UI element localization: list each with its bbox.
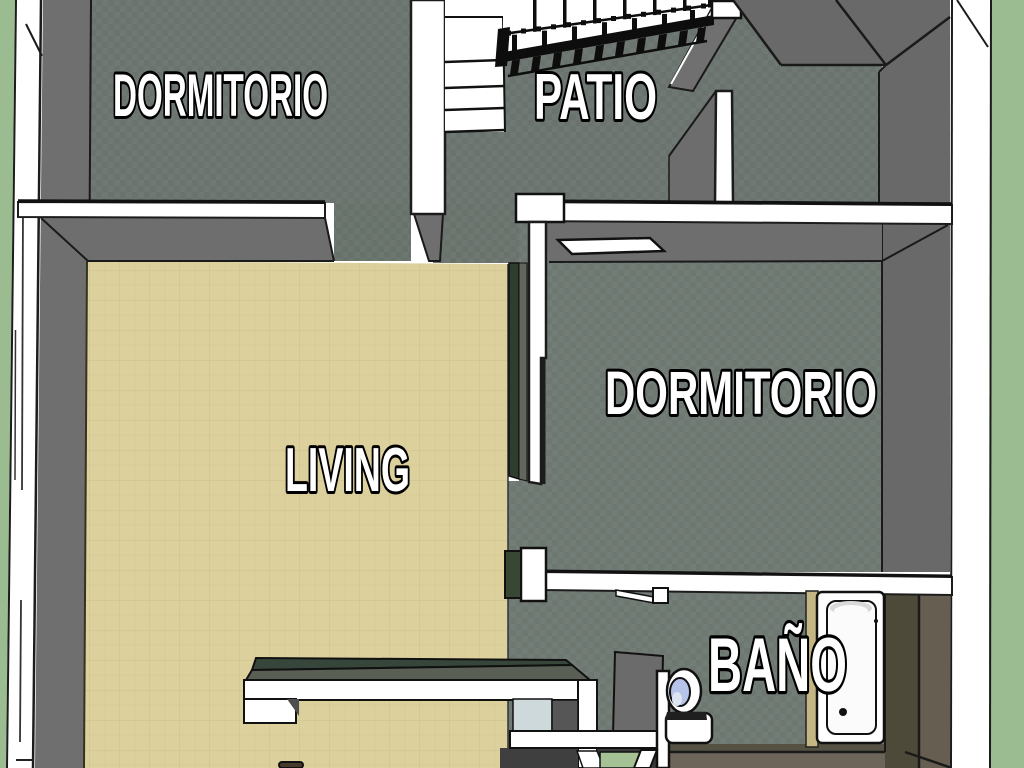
svg-text:BAÑO: BAÑO	[708, 623, 847, 708]
svg-text:DORMITORIO: DORMITORIO	[113, 62, 328, 129]
svg-text:LIVING: LIVING	[285, 436, 410, 505]
svg-text:PATIO: PATIO	[534, 60, 657, 133]
svg-text:DORMITORIO: DORMITORIO	[605, 359, 877, 427]
